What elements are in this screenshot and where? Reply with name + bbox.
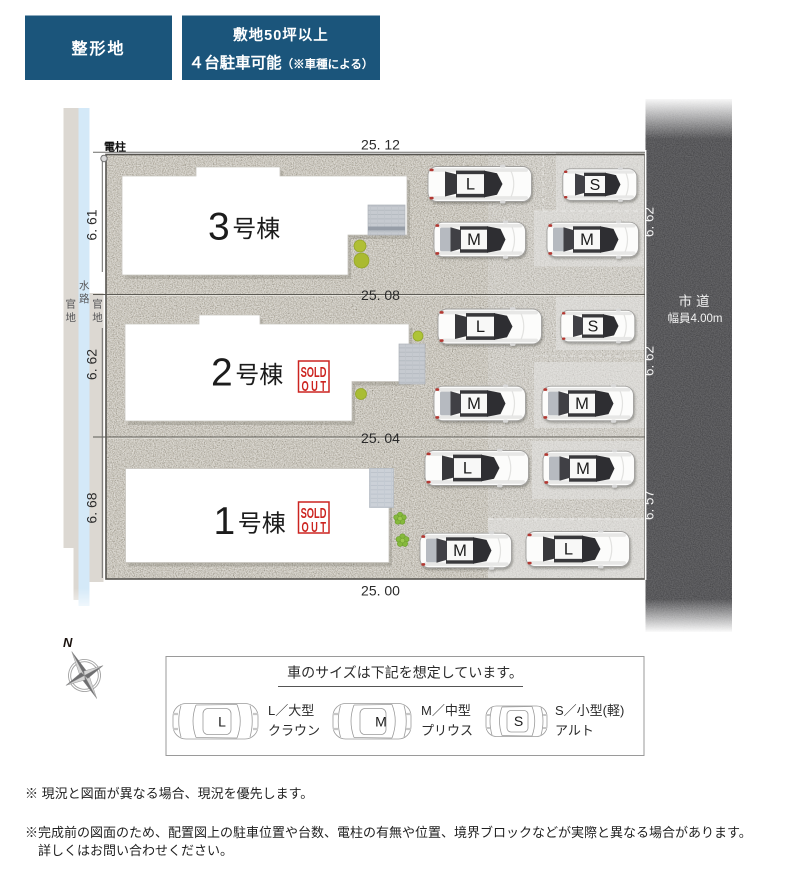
svg-text:L: L [466, 176, 475, 194]
svg-text:L／大型: L／大型 [268, 703, 314, 718]
svg-text:25. 08: 25. 08 [361, 287, 400, 303]
svg-text:N: N [63, 635, 73, 650]
svg-text:電柱: 電柱 [104, 140, 126, 154]
svg-text:M: M [576, 460, 590, 478]
svg-text:25. 00: 25. 00 [361, 583, 400, 599]
svg-text:M: M [467, 395, 481, 413]
svg-text:クラウン: クラウン [268, 723, 320, 738]
svg-text:幅員4.00m: 幅員4.00m [668, 312, 723, 325]
svg-text:※ 現況と図面が異なる場合、現況を優先します。: ※ 現況と図面が異なる場合、現況を優先します。 [25, 786, 313, 801]
svg-text:M: M [375, 714, 387, 730]
svg-text:L: L [218, 714, 226, 730]
svg-text:L: L [463, 460, 472, 478]
svg-text:OUT: OUT [301, 378, 328, 395]
svg-text:OUT: OUT [301, 519, 328, 536]
svg-text:※完成前の図面のため、配置図上の駐車位置や台数、電柱の有無や: ※完成前の図面のため、配置図上の駐車位置や台数、電柱の有無や位置、境界ブロックな… [25, 825, 752, 840]
svg-text:S／小型(軽): S／小型(軽) [555, 703, 624, 718]
svg-text:25. 12: 25. 12 [361, 136, 400, 152]
svg-text:S: S [514, 713, 523, 729]
svg-text:6. 62: 6. 62 [83, 349, 99, 380]
svg-text:官: 官 [66, 298, 77, 311]
svg-text:L: L [564, 541, 573, 559]
svg-text:25. 04: 25. 04 [361, 430, 400, 446]
svg-text:官: 官 [92, 298, 103, 311]
svg-text:車のサイズは下記を想定しています。: 車のサイズは下記を想定しています。 [287, 665, 523, 681]
svg-text:6. 61: 6. 61 [83, 209, 99, 240]
svg-text:アルト: アルト [555, 723, 594, 738]
svg-text:M: M [467, 231, 481, 249]
svg-text:市道: 市道 [679, 293, 714, 309]
svg-text:プリウス: プリウス [421, 723, 473, 738]
svg-text:敷地50坪以上: 敷地50坪以上 [233, 26, 329, 44]
svg-text:M／中型: M／中型 [421, 703, 471, 718]
svg-text:M: M [575, 395, 589, 413]
svg-text:L: L [476, 318, 485, 336]
svg-text:水: 水 [79, 280, 90, 292]
svg-text:整形地: 整形地 [70, 39, 125, 58]
svg-text:路: 路 [79, 292, 90, 305]
svg-text:S: S [588, 319, 599, 336]
svg-text:詳しくはお問い合わせください。: 詳しくはお問い合わせください。 [38, 843, 233, 858]
svg-text:M: M [453, 542, 467, 560]
svg-text:地: 地 [92, 311, 103, 324]
svg-text:M: M [580, 231, 594, 249]
svg-text:S: S [590, 177, 601, 194]
svg-text:地: 地 [66, 311, 77, 324]
svg-text:6. 68: 6. 68 [83, 492, 99, 523]
